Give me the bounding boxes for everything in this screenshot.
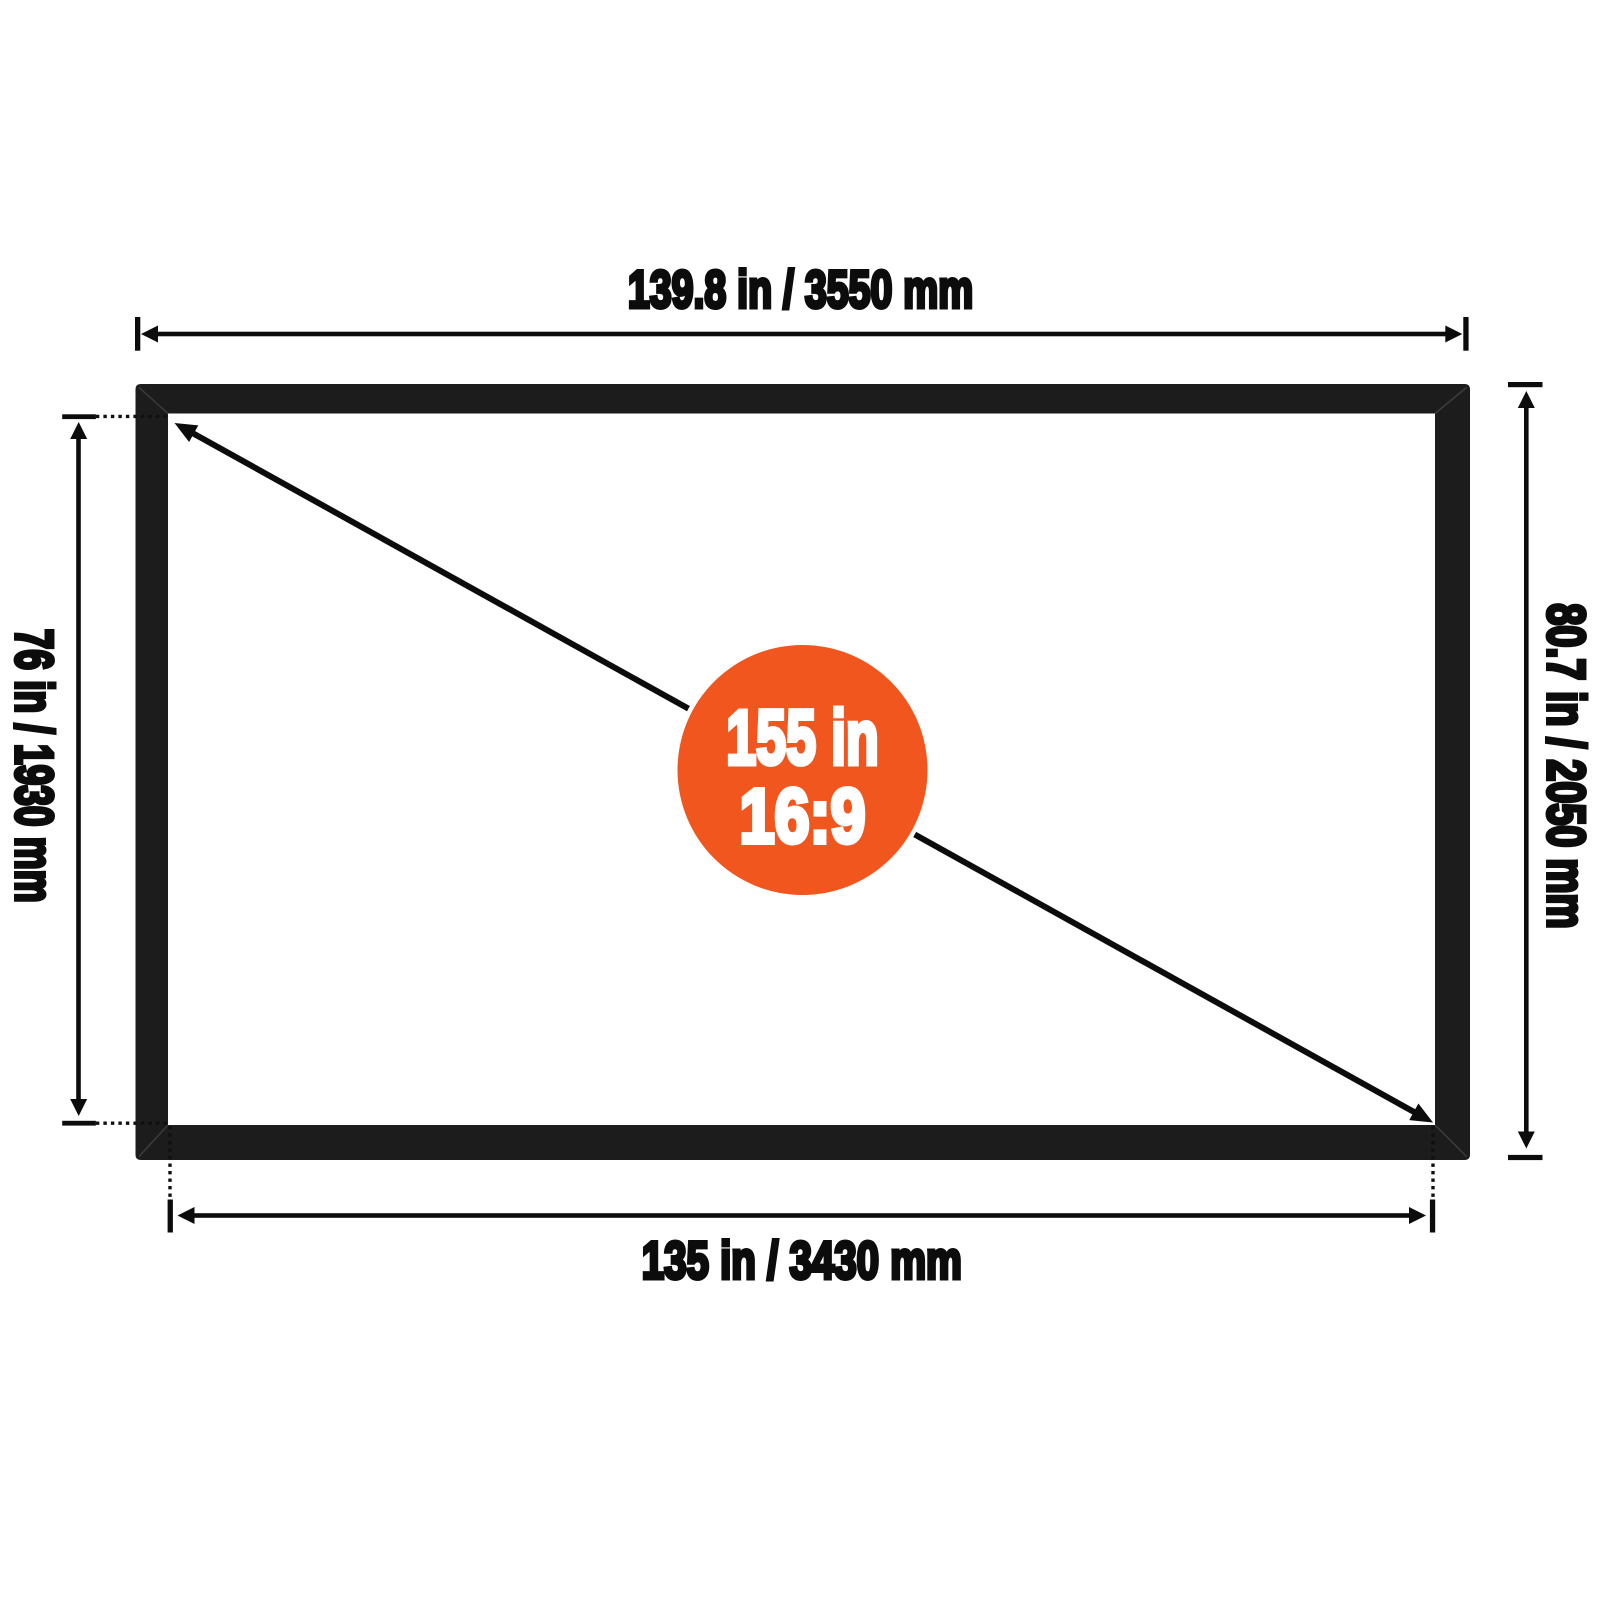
svg-text:80.7 in / 2050 mm: 80.7 in / 2050 mm (1537, 603, 1596, 928)
svg-text:155 in: 155 in (726, 695, 879, 781)
svg-text:16:9: 16:9 (739, 772, 865, 858)
svg-text:135 in / 3430 mm: 135 in / 3430 mm (642, 1230, 962, 1290)
svg-text:76 in / 1930 mm: 76 in / 1930 mm (4, 629, 63, 903)
svg-text:139.8 in / 3550 mm: 139.8 in / 3550 mm (628, 260, 973, 319)
